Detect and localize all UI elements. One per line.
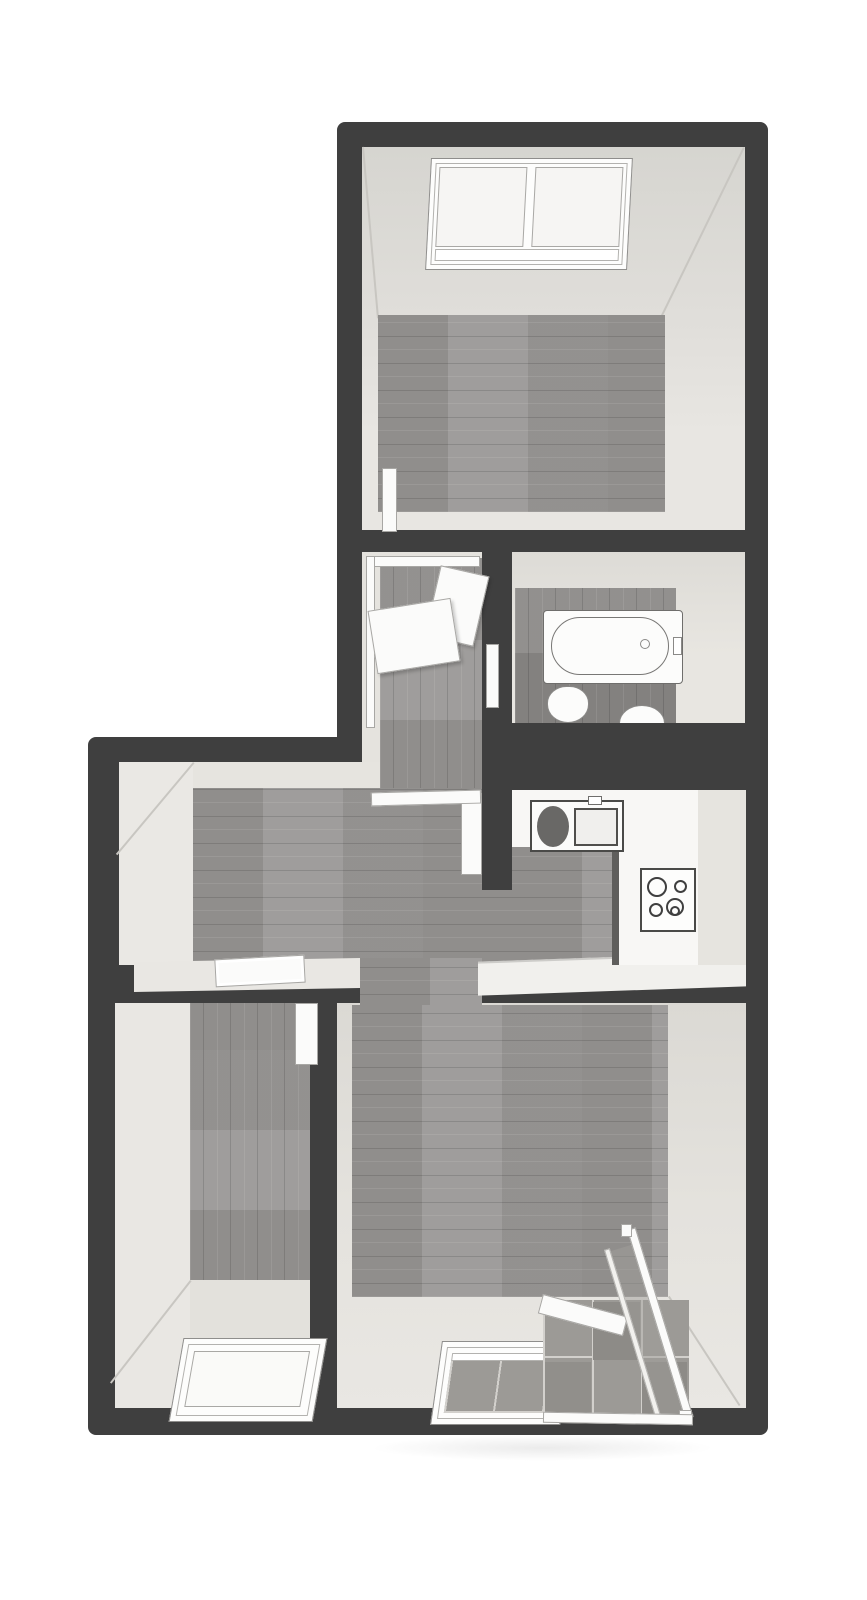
sink-basin — [574, 808, 618, 846]
bathtub — [543, 610, 683, 684]
loggia-railing-post — [621, 1224, 632, 1237]
bathtub-basin — [551, 617, 669, 675]
sink-drainer — [537, 806, 569, 847]
burner — [647, 877, 667, 897]
loggia-tile-dark — [545, 1362, 591, 1416]
floor-bedroom-left — [190, 1003, 310, 1280]
burner — [649, 903, 663, 917]
roof-window-top — [425, 158, 633, 270]
roof-window-sill — [435, 249, 620, 261]
building-shadow — [370, 1435, 715, 1461]
burner-inner-ring — [670, 906, 680, 916]
cooktop — [640, 868, 696, 932]
floor-opening-hall-living — [360, 958, 482, 1008]
hall-sloped-ceiling — [119, 762, 193, 965]
floor-bedroom-top — [378, 315, 665, 512]
toilet-1 — [547, 686, 589, 723]
door-bedroom-left — [295, 1003, 318, 1065]
floor-hallway — [193, 788, 482, 965]
view-through-window-tiles — [444, 1360, 557, 1413]
floor-opening-hall-kitchen — [482, 890, 512, 965]
door-kitchen — [461, 793, 482, 875]
roof-window-pane — [435, 167, 527, 247]
threshold-hall-landing — [371, 790, 481, 807]
floor-plan — [0, 0, 867, 1600]
roof-window-pane — [184, 1351, 310, 1407]
kitchen-counter-edge-shadow — [612, 847, 619, 965]
burner — [674, 880, 687, 893]
kitchen-east-wall-face — [698, 790, 746, 965]
threshold-hall-bedroom-left — [214, 955, 305, 988]
door-bathroom — [486, 644, 499, 708]
roof-window-left — [169, 1338, 328, 1422]
kitchen-sink-unit — [530, 800, 624, 852]
floor-kitchen — [512, 847, 618, 965]
sink-faucet — [588, 796, 602, 805]
bathtub-faucet — [673, 637, 682, 655]
bathtub-drain — [640, 639, 650, 649]
roof-window-pane — [531, 167, 623, 247]
stair-railing-top-bar — [366, 556, 480, 567]
door-bedroom-top — [382, 468, 397, 532]
bedroom-left-sloped-ceiling — [115, 1003, 190, 1408]
stair-railing-panel — [368, 598, 461, 674]
